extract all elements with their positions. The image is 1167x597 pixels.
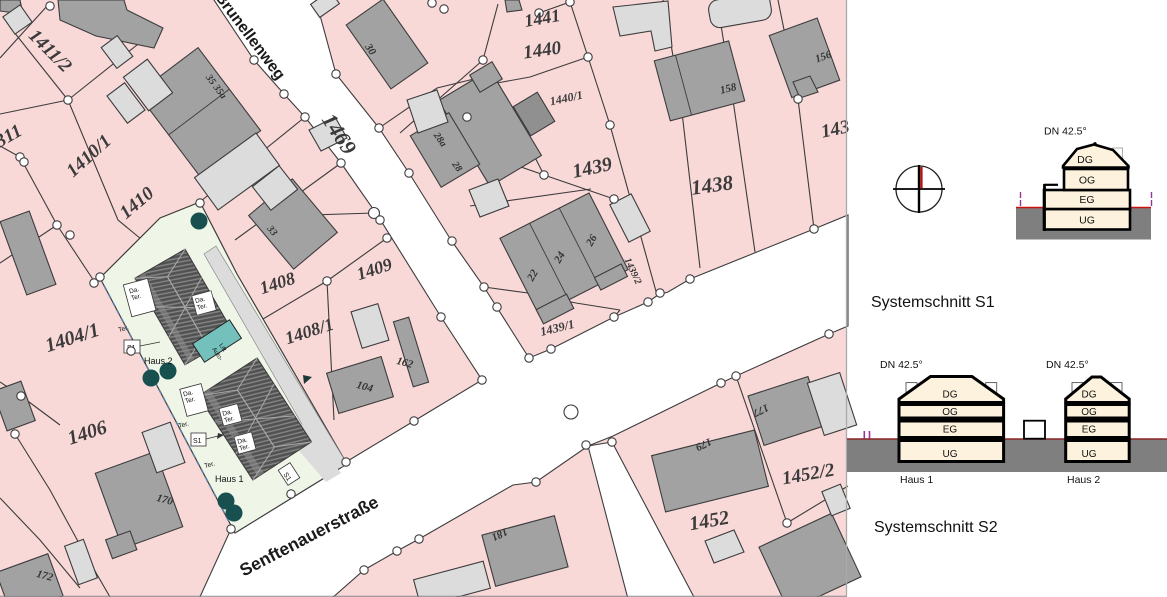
svg-text:DN 42.5°: DN 42.5°: [880, 359, 923, 371]
svg-text:S1: S1: [193, 438, 202, 445]
svg-text:DN 42.5°: DN 42.5°: [1044, 126, 1087, 138]
svg-text:EG: EG: [943, 425, 958, 436]
svg-text:EG: EG: [1082, 425, 1097, 436]
svg-text:DG: DG: [1082, 390, 1097, 401]
svg-text:UG: UG: [943, 449, 958, 460]
svg-text:Haus 1: Haus 1: [215, 474, 244, 484]
svg-text:EG: EG: [1079, 194, 1094, 206]
svg-text:UG: UG: [1079, 215, 1095, 227]
svg-text:Haus 2: Haus 2: [1067, 474, 1100, 486]
svg-text:Systemschnitt S2: Systemschnitt S2: [874, 519, 998, 536]
svg-text:OG: OG: [1081, 407, 1097, 418]
svg-text:DN 42.5°: DN 42.5°: [1046, 359, 1089, 371]
svg-text:DG: DG: [943, 390, 958, 401]
svg-text:OG: OG: [942, 407, 958, 418]
svg-text:DG: DG: [1077, 154, 1093, 166]
svg-text:Systemschnitt S1: Systemschnitt S1: [871, 294, 995, 311]
svg-text:UG: UG: [1082, 449, 1097, 460]
svg-text:Haus 2: Haus 2: [144, 356, 173, 366]
svg-text:OG: OG: [1079, 175, 1095, 187]
svg-text:Haus 1: Haus 1: [900, 474, 933, 486]
